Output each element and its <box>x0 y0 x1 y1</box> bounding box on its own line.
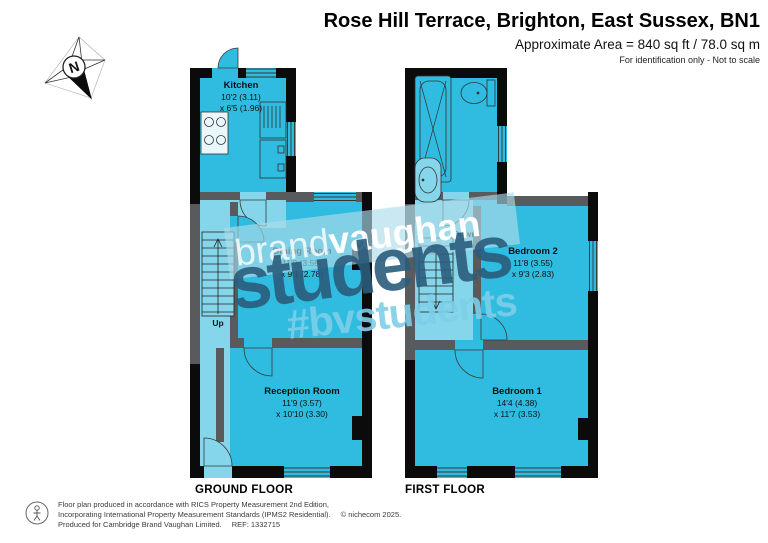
ground-floor-caption: GROUND FLOOR <box>195 484 293 496</box>
footer-line2: Incorporating International Property Mea… <box>58 510 331 519</box>
window <box>588 241 598 291</box>
window <box>515 466 561 478</box>
window <box>314 192 356 202</box>
window <box>246 68 276 78</box>
window <box>286 122 296 156</box>
footer-ref: REF: 1332715 <box>232 520 280 529</box>
footer: Floor plan produced in accordance with R… <box>24 500 401 530</box>
sink-icon <box>415 158 441 202</box>
room-label-bedroom-1: Bedroom 1 14'4 (4.38) x 11'7 (3.53) <box>492 386 542 420</box>
footer-text: Floor plan produced in accordance with R… <box>58 500 401 530</box>
room-label-reception-room: Reception Room 11'9 (3.57) x 10'10 (3.30… <box>264 386 339 420</box>
kitchen-counter-icon <box>260 102 286 178</box>
window <box>437 466 467 478</box>
footer-copyright: © nichecom 2025. <box>341 510 402 519</box>
first-floor-caption: FIRST FLOOR <box>405 484 485 496</box>
disclaimer-note: For identification only - Not to scale <box>619 55 760 65</box>
footer-line1: Floor plan produced in accordance with R… <box>58 500 329 509</box>
approximate-area: Approximate Area = 840 sq ft / 78.0 sq m <box>515 37 760 52</box>
hob-icon <box>201 112 228 154</box>
footer-line3: Produced for Cambridge Brand Vaughan Lim… <box>58 520 222 529</box>
door-arc <box>212 48 238 78</box>
room-label-kitchen: Kitchen 10'2 (3.11) x 6'5 (1.96) <box>220 80 262 114</box>
floorplan-page: Rose Hill Terrace, Brighton, East Sussex… <box>0 0 768 543</box>
nichecom-logo-icon <box>24 500 50 526</box>
compass-north-icon: N <box>40 34 110 104</box>
stairs-up-label: Up <box>212 318 223 328</box>
window <box>284 466 330 478</box>
window <box>497 126 507 162</box>
property-title: Rose Hill Terrace, Brighton, East Sussex… <box>324 10 760 33</box>
room-label-bedroom-2: Bedroom 2 11'8 (3.55) x 9'3 (2.83) <box>508 246 558 280</box>
